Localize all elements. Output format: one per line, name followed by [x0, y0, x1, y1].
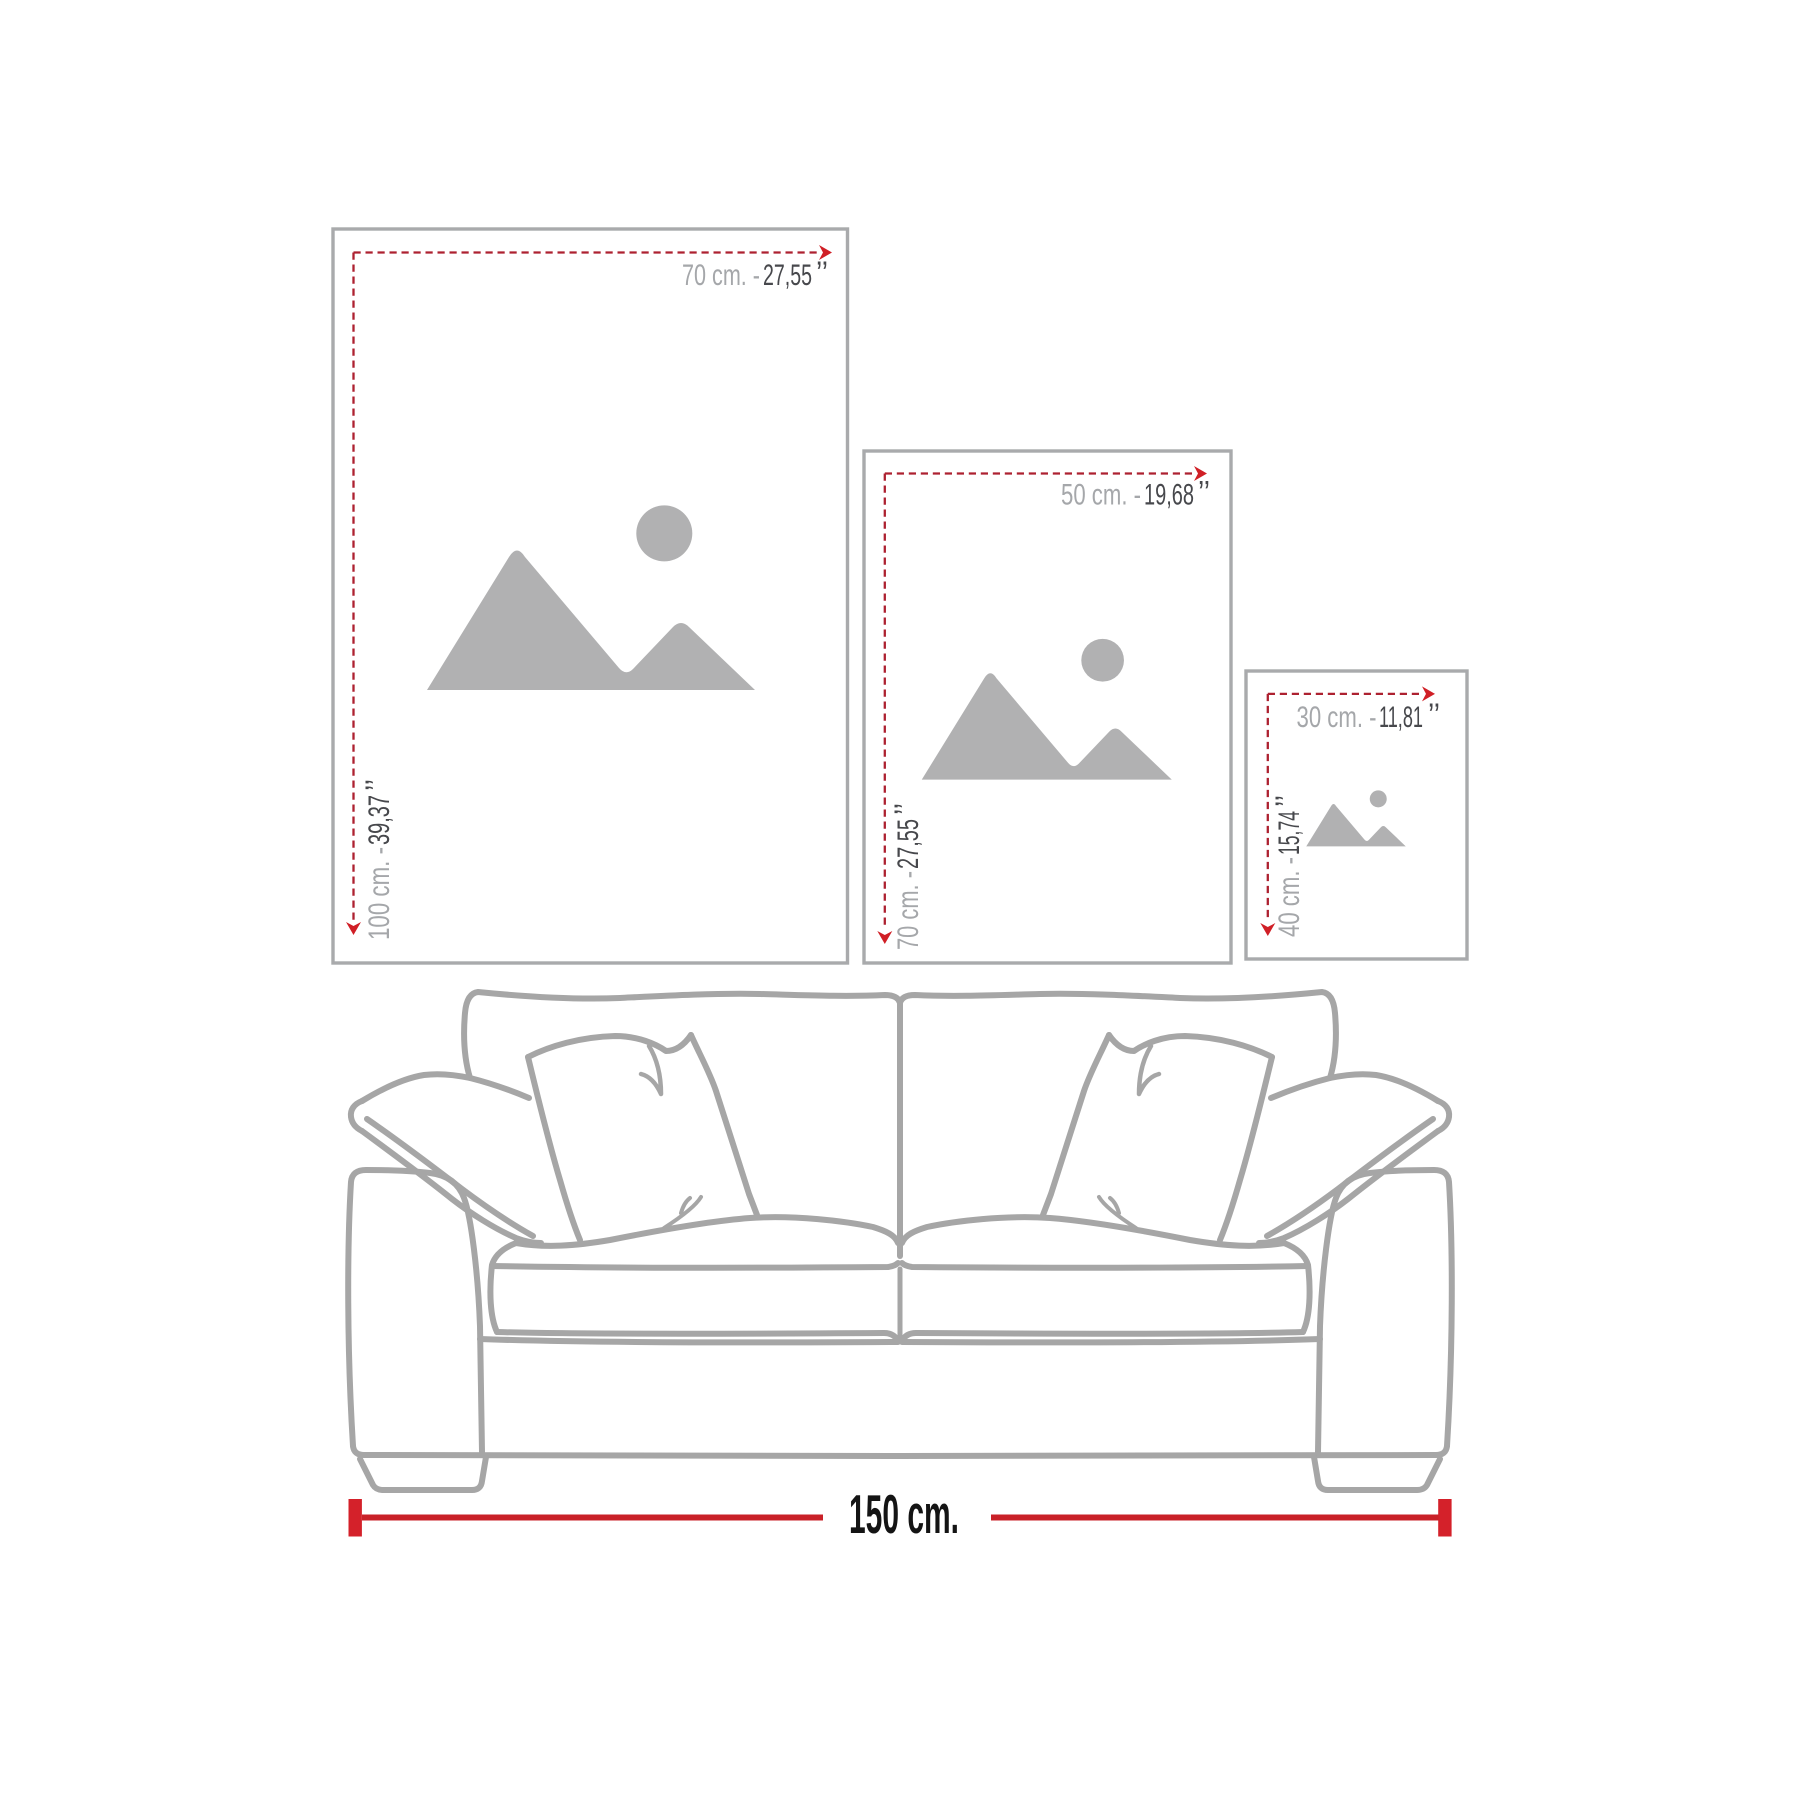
svg-text:27,55: 27,55 [892, 819, 925, 869]
svg-text:’’: ’’ [1269, 795, 1305, 807]
svg-text:’’: ’’ [1428, 697, 1440, 733]
svg-text:’’: ’’ [888, 803, 924, 815]
svg-text:27,55: 27,55 [763, 259, 812, 292]
svg-text:70 cm. -: 70 cm. - [892, 871, 925, 950]
svg-text:11,81: 11,81 [1379, 701, 1423, 734]
svg-text:19,68: 19,68 [1144, 479, 1194, 512]
svg-text:100 cm. -: 100 cm. - [363, 847, 396, 940]
svg-text:15,74: 15,74 [1273, 811, 1306, 855]
svg-text:’’: ’’ [1198, 475, 1210, 511]
svg-text:30 cm. -: 30 cm. - [1297, 701, 1377, 734]
svg-text:150 cm.: 150 cm. [849, 1483, 959, 1545]
svg-text:40 cm. -: 40 cm. - [1273, 857, 1306, 937]
svg-text:70 cm. -: 70 cm. - [682, 259, 760, 292]
svg-text:’’: ’’ [816, 255, 828, 291]
svg-text:39,37: 39,37 [363, 795, 396, 845]
svg-text:50 cm. -: 50 cm. - [1061, 479, 1141, 512]
svg-text:’’: ’’ [359, 779, 395, 791]
